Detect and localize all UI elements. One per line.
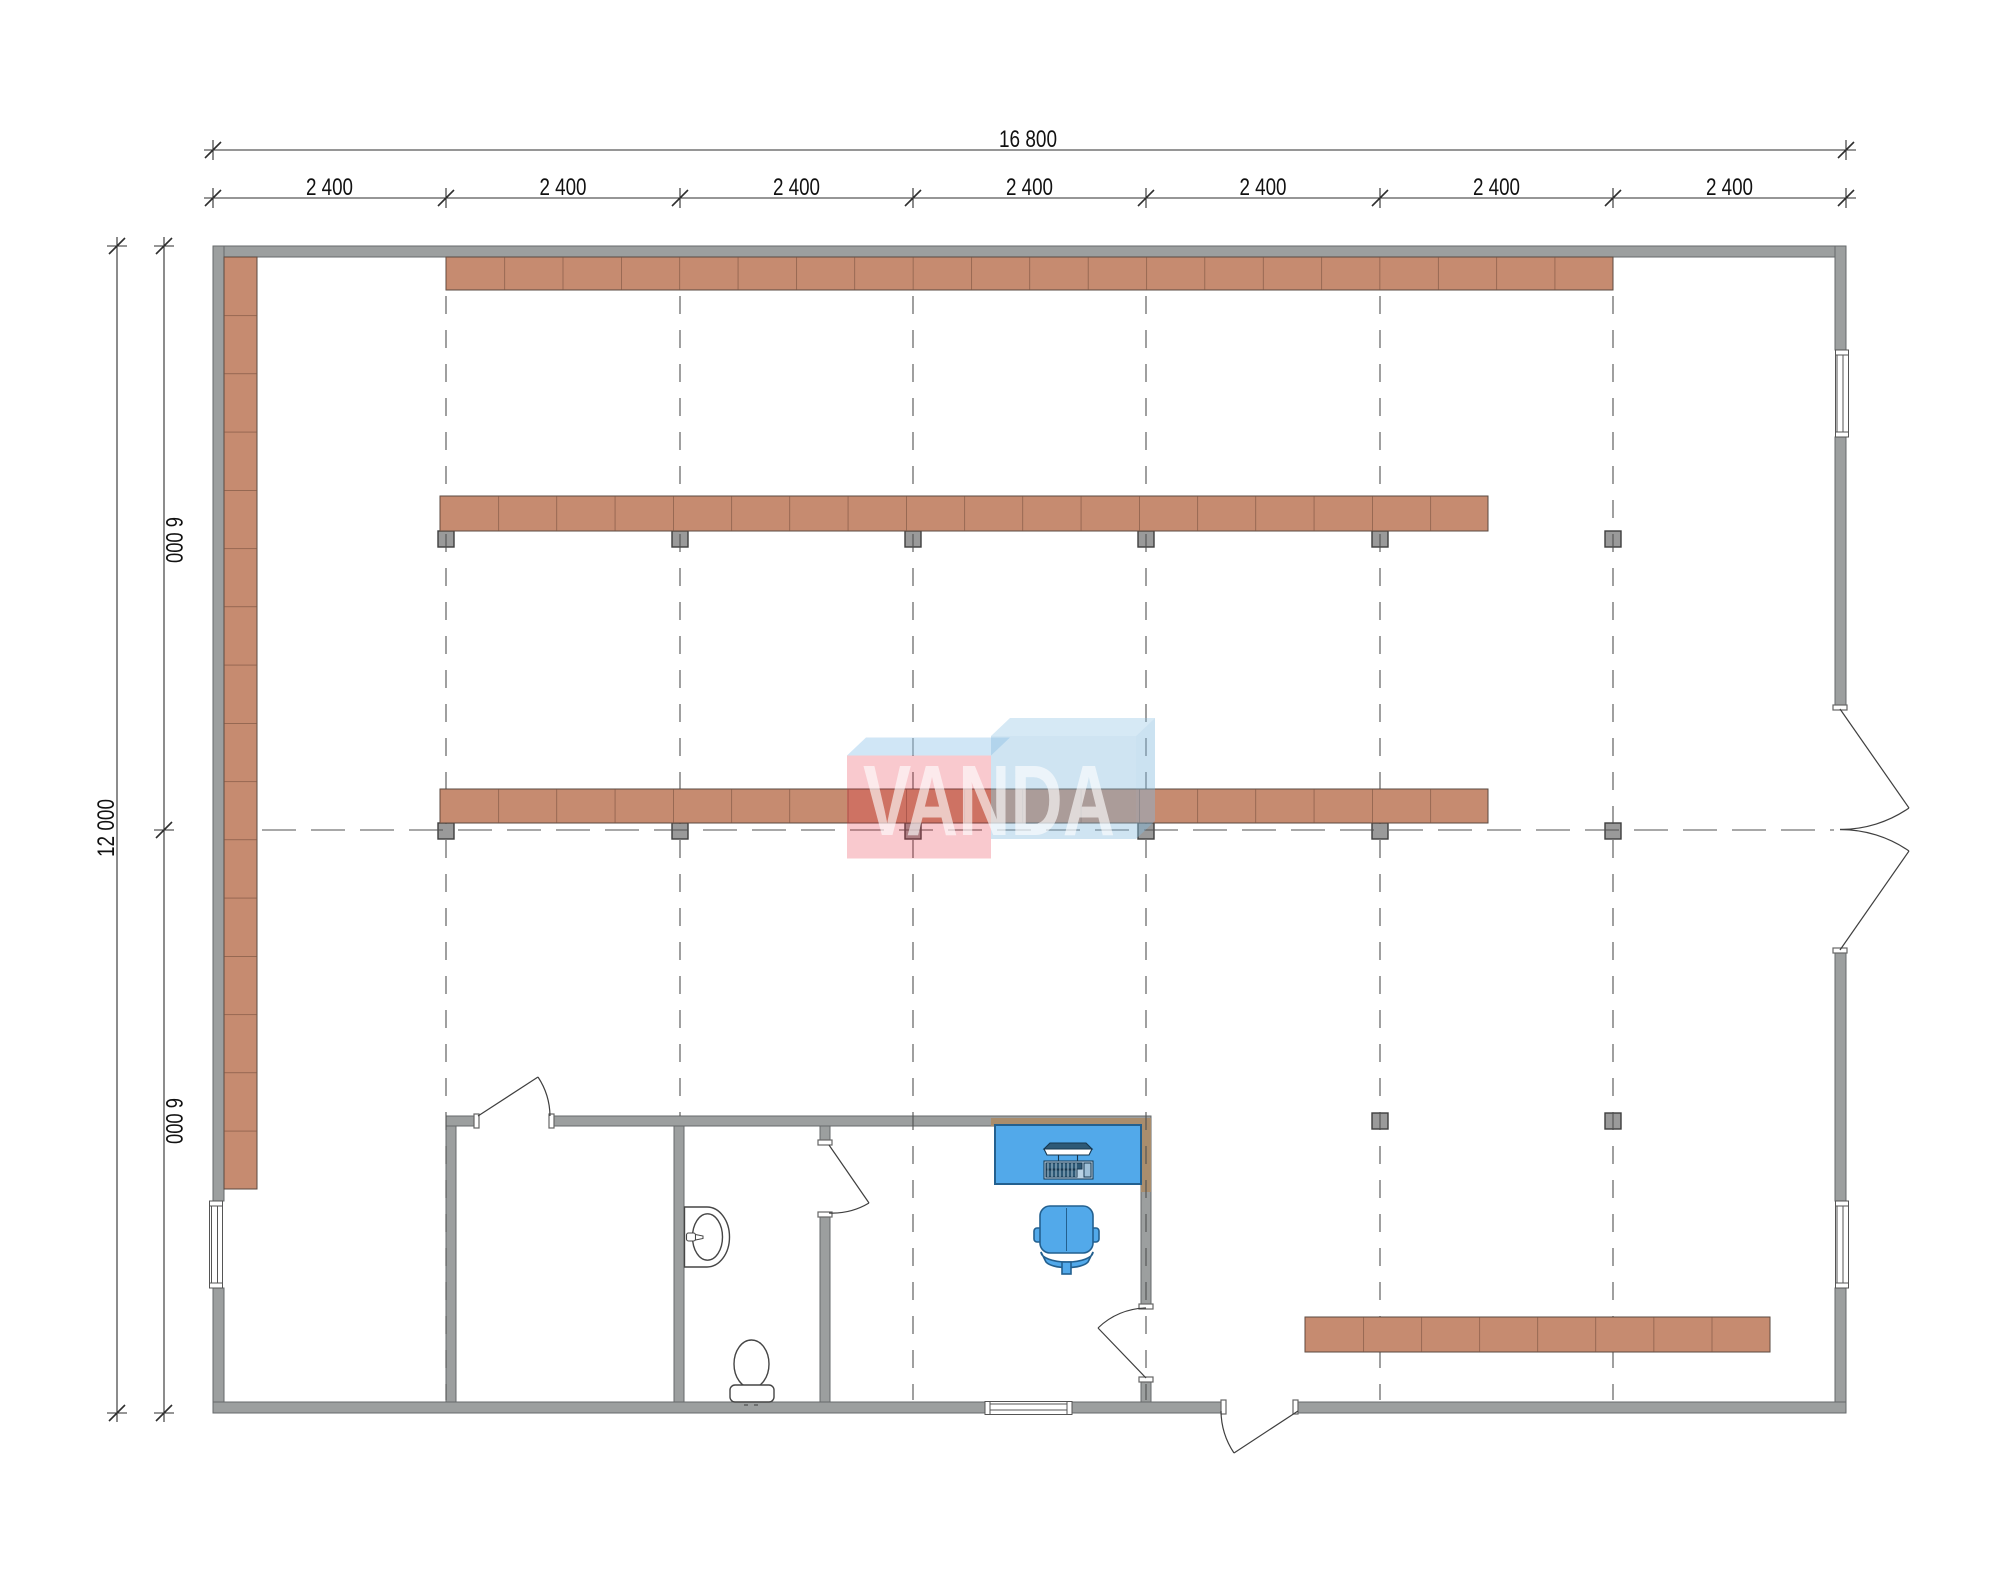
svg-text:2 400: 2 400	[540, 174, 587, 201]
svg-text:2 400: 2 400	[1473, 174, 1520, 201]
svg-text:2 400: 2 400	[773, 174, 820, 201]
svg-text:12 000: 12 000	[93, 799, 120, 857]
svg-text:2 400: 2 400	[1006, 174, 1053, 201]
svg-text:6 000: 6 000	[160, 1098, 187, 1144]
svg-text:6 000: 6 000	[160, 517, 187, 563]
svg-text:VANDA: VANDA	[863, 745, 1115, 857]
svg-text:2 400: 2 400	[1240, 174, 1287, 201]
svg-text:16 800: 16 800	[999, 126, 1057, 153]
svg-text:2 400: 2 400	[306, 174, 353, 201]
svg-text:2 400: 2 400	[1706, 174, 1753, 201]
